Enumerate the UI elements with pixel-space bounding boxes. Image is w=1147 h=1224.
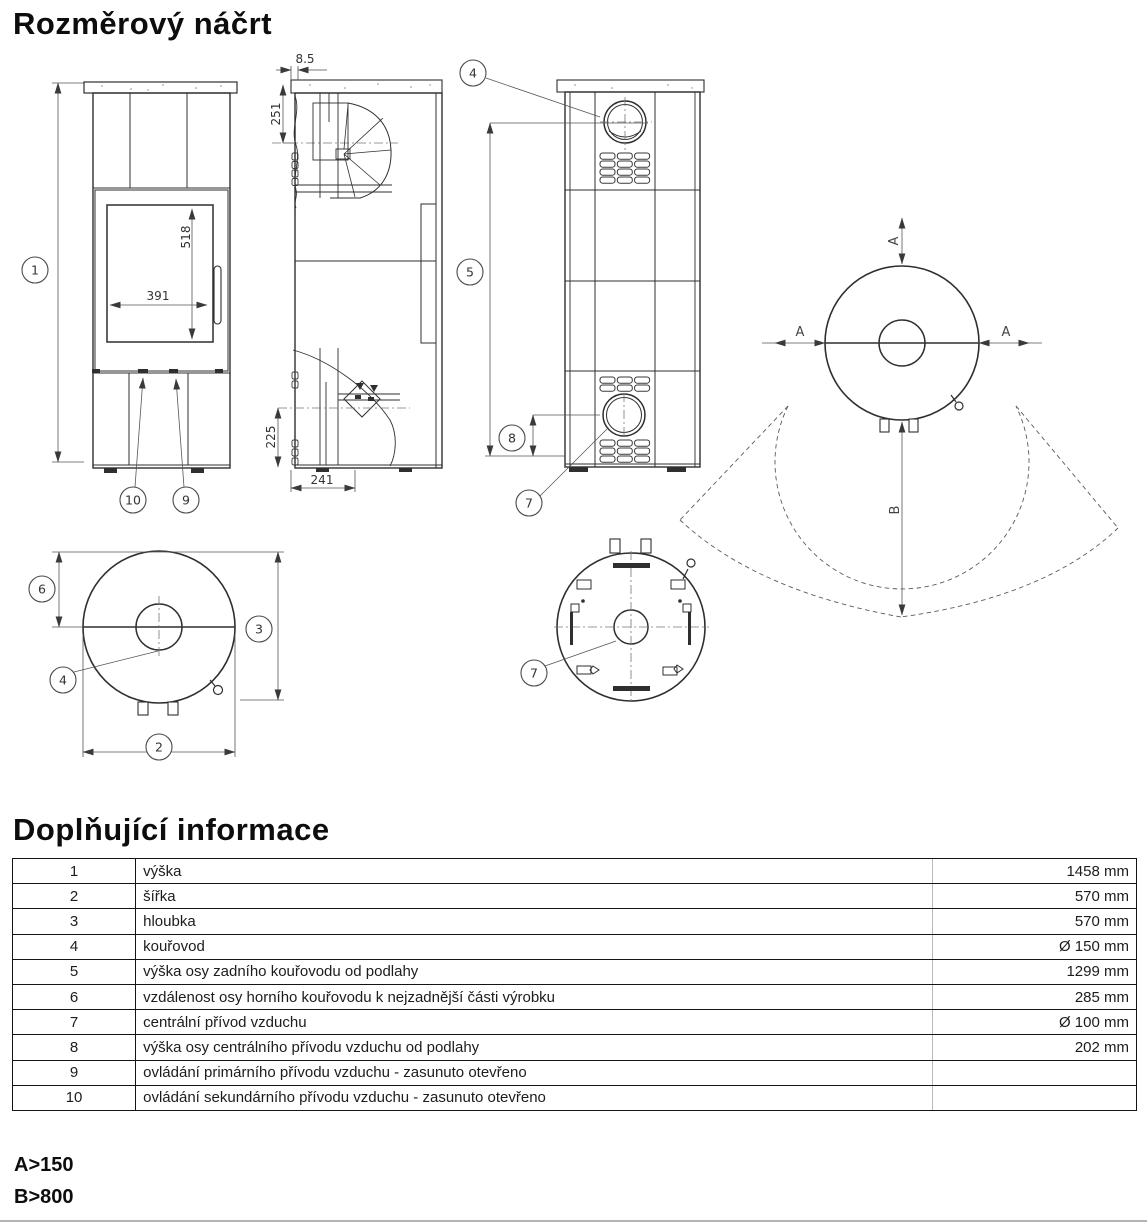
- side-view: 8.5 251: [264, 52, 442, 492]
- balloon-7-rear: 7: [516, 490, 542, 516]
- table-row: 7centrální přívod vzduchuØ 100 mm: [13, 1010, 1137, 1035]
- table-cell-label: vzdálenost osy horního kouřovodu k nejza…: [136, 984, 932, 1009]
- table-cell-num: 7: [13, 1010, 136, 1035]
- table-cell-num: 8: [13, 1035, 136, 1060]
- table-cell-label: kouřovod: [136, 934, 932, 959]
- table-cell-label: hloubka: [136, 909, 932, 934]
- table-cell-value: 570 mm: [932, 909, 1136, 934]
- svg-text:10: 10: [125, 493, 141, 508]
- balloon-2: 2: [146, 734, 172, 760]
- table-cell-label: výška osy zadního kouřovodu od podlahy: [136, 959, 932, 984]
- rear-view: 5 8 4: [457, 60, 704, 516]
- clearance-label-a-right: A: [1002, 325, 1011, 340]
- table-cell-label: centrální přívod vzduchu: [136, 1010, 932, 1035]
- svg-text:2: 2: [155, 740, 163, 755]
- table-cell-label: výška: [136, 859, 932, 884]
- table-row: 5výška osy zadního kouřovodu od podlahy1…: [13, 959, 1137, 984]
- dim-label-glass-height: 518: [179, 226, 193, 249]
- table-cell-num: 9: [13, 1060, 136, 1085]
- table-cell-num: 4: [13, 934, 136, 959]
- dim-label-glass-width: 391: [147, 289, 170, 303]
- clearance-label-a-top: A: [887, 236, 902, 245]
- table-cell-value: Ø 150 mm: [932, 934, 1136, 959]
- balloon-5: 5: [457, 259, 483, 285]
- table-cell-value: [932, 1060, 1136, 1085]
- note-a: A>150: [14, 1154, 74, 1177]
- table-cell-label: ovládání primárního přívodu vzduchu - za…: [136, 1060, 932, 1085]
- table-cell-value: Ø 100 mm: [932, 1010, 1136, 1035]
- svg-text:4: 4: [469, 66, 477, 81]
- balloon-9: 9: [173, 487, 199, 513]
- balloon-7-bottom: 7: [521, 660, 547, 686]
- info-table-body: 1výška1458 mm2šířka570 mm3hloubka570 mm4…: [13, 859, 1137, 1111]
- table-row: 1výška1458 mm: [13, 859, 1137, 884]
- section-title: Doplňující informace: [13, 812, 330, 848]
- table-cell-label: výška osy centrálního přívodu vzduchu od…: [136, 1035, 932, 1060]
- table-cell-value: 1299 mm: [932, 959, 1136, 984]
- clearance-label-b: B: [888, 506, 903, 515]
- dim-label-8-5: 8.5: [295, 52, 314, 66]
- table-cell-num: 5: [13, 959, 136, 984]
- balloon-4-top: 4: [50, 667, 76, 693]
- clearance-diagram: A A A B: [680, 218, 1118, 617]
- table-row: 2šířka570 mm: [13, 884, 1137, 909]
- table-row: 8výška osy centrálního přívodu vzduchu o…: [13, 1035, 1137, 1060]
- dim-label-241: 241: [311, 473, 334, 487]
- table-row: 4kouřovodØ 150 mm: [13, 934, 1137, 959]
- table-row: 10ovládání sekundárního přívodu vzduchu …: [13, 1085, 1137, 1110]
- info-table: 1výška1458 mm2šířka570 mm3hloubka570 mm4…: [12, 858, 1137, 1111]
- svg-text:1: 1: [31, 263, 39, 278]
- table-cell-num: 6: [13, 984, 136, 1009]
- table-cell-value: 1458 mm: [932, 859, 1136, 884]
- table-cell-num: 2: [13, 884, 136, 909]
- page-bottom-rule: [0, 1220, 1147, 1222]
- table-row: 6vzdálenost osy horního kouřovodu k nejz…: [13, 984, 1137, 1009]
- balloon-10: 10: [120, 487, 146, 513]
- table-cell-value: 202 mm: [932, 1035, 1136, 1060]
- manual-page: Rozměrový náčrt: [0, 0, 1147, 1224]
- table-cell-num: 3: [13, 909, 136, 934]
- balloon-3: 3: [246, 616, 272, 642]
- front-view: 518 391 1: [22, 82, 237, 513]
- svg-text:7: 7: [525, 496, 533, 511]
- svg-text:9: 9: [182, 493, 190, 508]
- top-view: 6 3 4 2: [29, 551, 284, 760]
- balloon-4-rear: 4: [460, 60, 486, 86]
- svg-text:3: 3: [255, 622, 263, 637]
- dimensional-drawing: 518 391 1: [0, 0, 1147, 805]
- balloon-1: 1: [22, 257, 48, 283]
- svg-text:4: 4: [59, 673, 67, 688]
- svg-text:7: 7: [530, 666, 538, 681]
- dim-label-251: 251: [269, 103, 283, 126]
- table-row: 9ovládání primárního přívodu vzduchu - z…: [13, 1060, 1137, 1085]
- note-b: B>800: [14, 1186, 74, 1209]
- balloon-6: 6: [29, 576, 55, 602]
- table-cell-num: 10: [13, 1085, 136, 1110]
- table-cell-label: šířka: [136, 884, 932, 909]
- svg-text:6: 6: [38, 582, 46, 597]
- table-cell-value: 285 mm: [932, 984, 1136, 1009]
- bottom-view: 7: [521, 539, 709, 704]
- table-cell-value: 570 mm: [932, 884, 1136, 909]
- svg-text:8: 8: [508, 431, 516, 446]
- svg-text:5: 5: [466, 265, 474, 280]
- table-cell-num: 1: [13, 859, 136, 884]
- table-cell-label: ovládání sekundárního přívodu vzduchu - …: [136, 1085, 932, 1110]
- table-cell-value: [932, 1085, 1136, 1110]
- clearance-label-a-left: A: [796, 325, 805, 340]
- table-row: 3hloubka570 mm: [13, 909, 1137, 934]
- dim-label-225: 225: [264, 426, 278, 449]
- balloon-8: 8: [499, 425, 525, 451]
